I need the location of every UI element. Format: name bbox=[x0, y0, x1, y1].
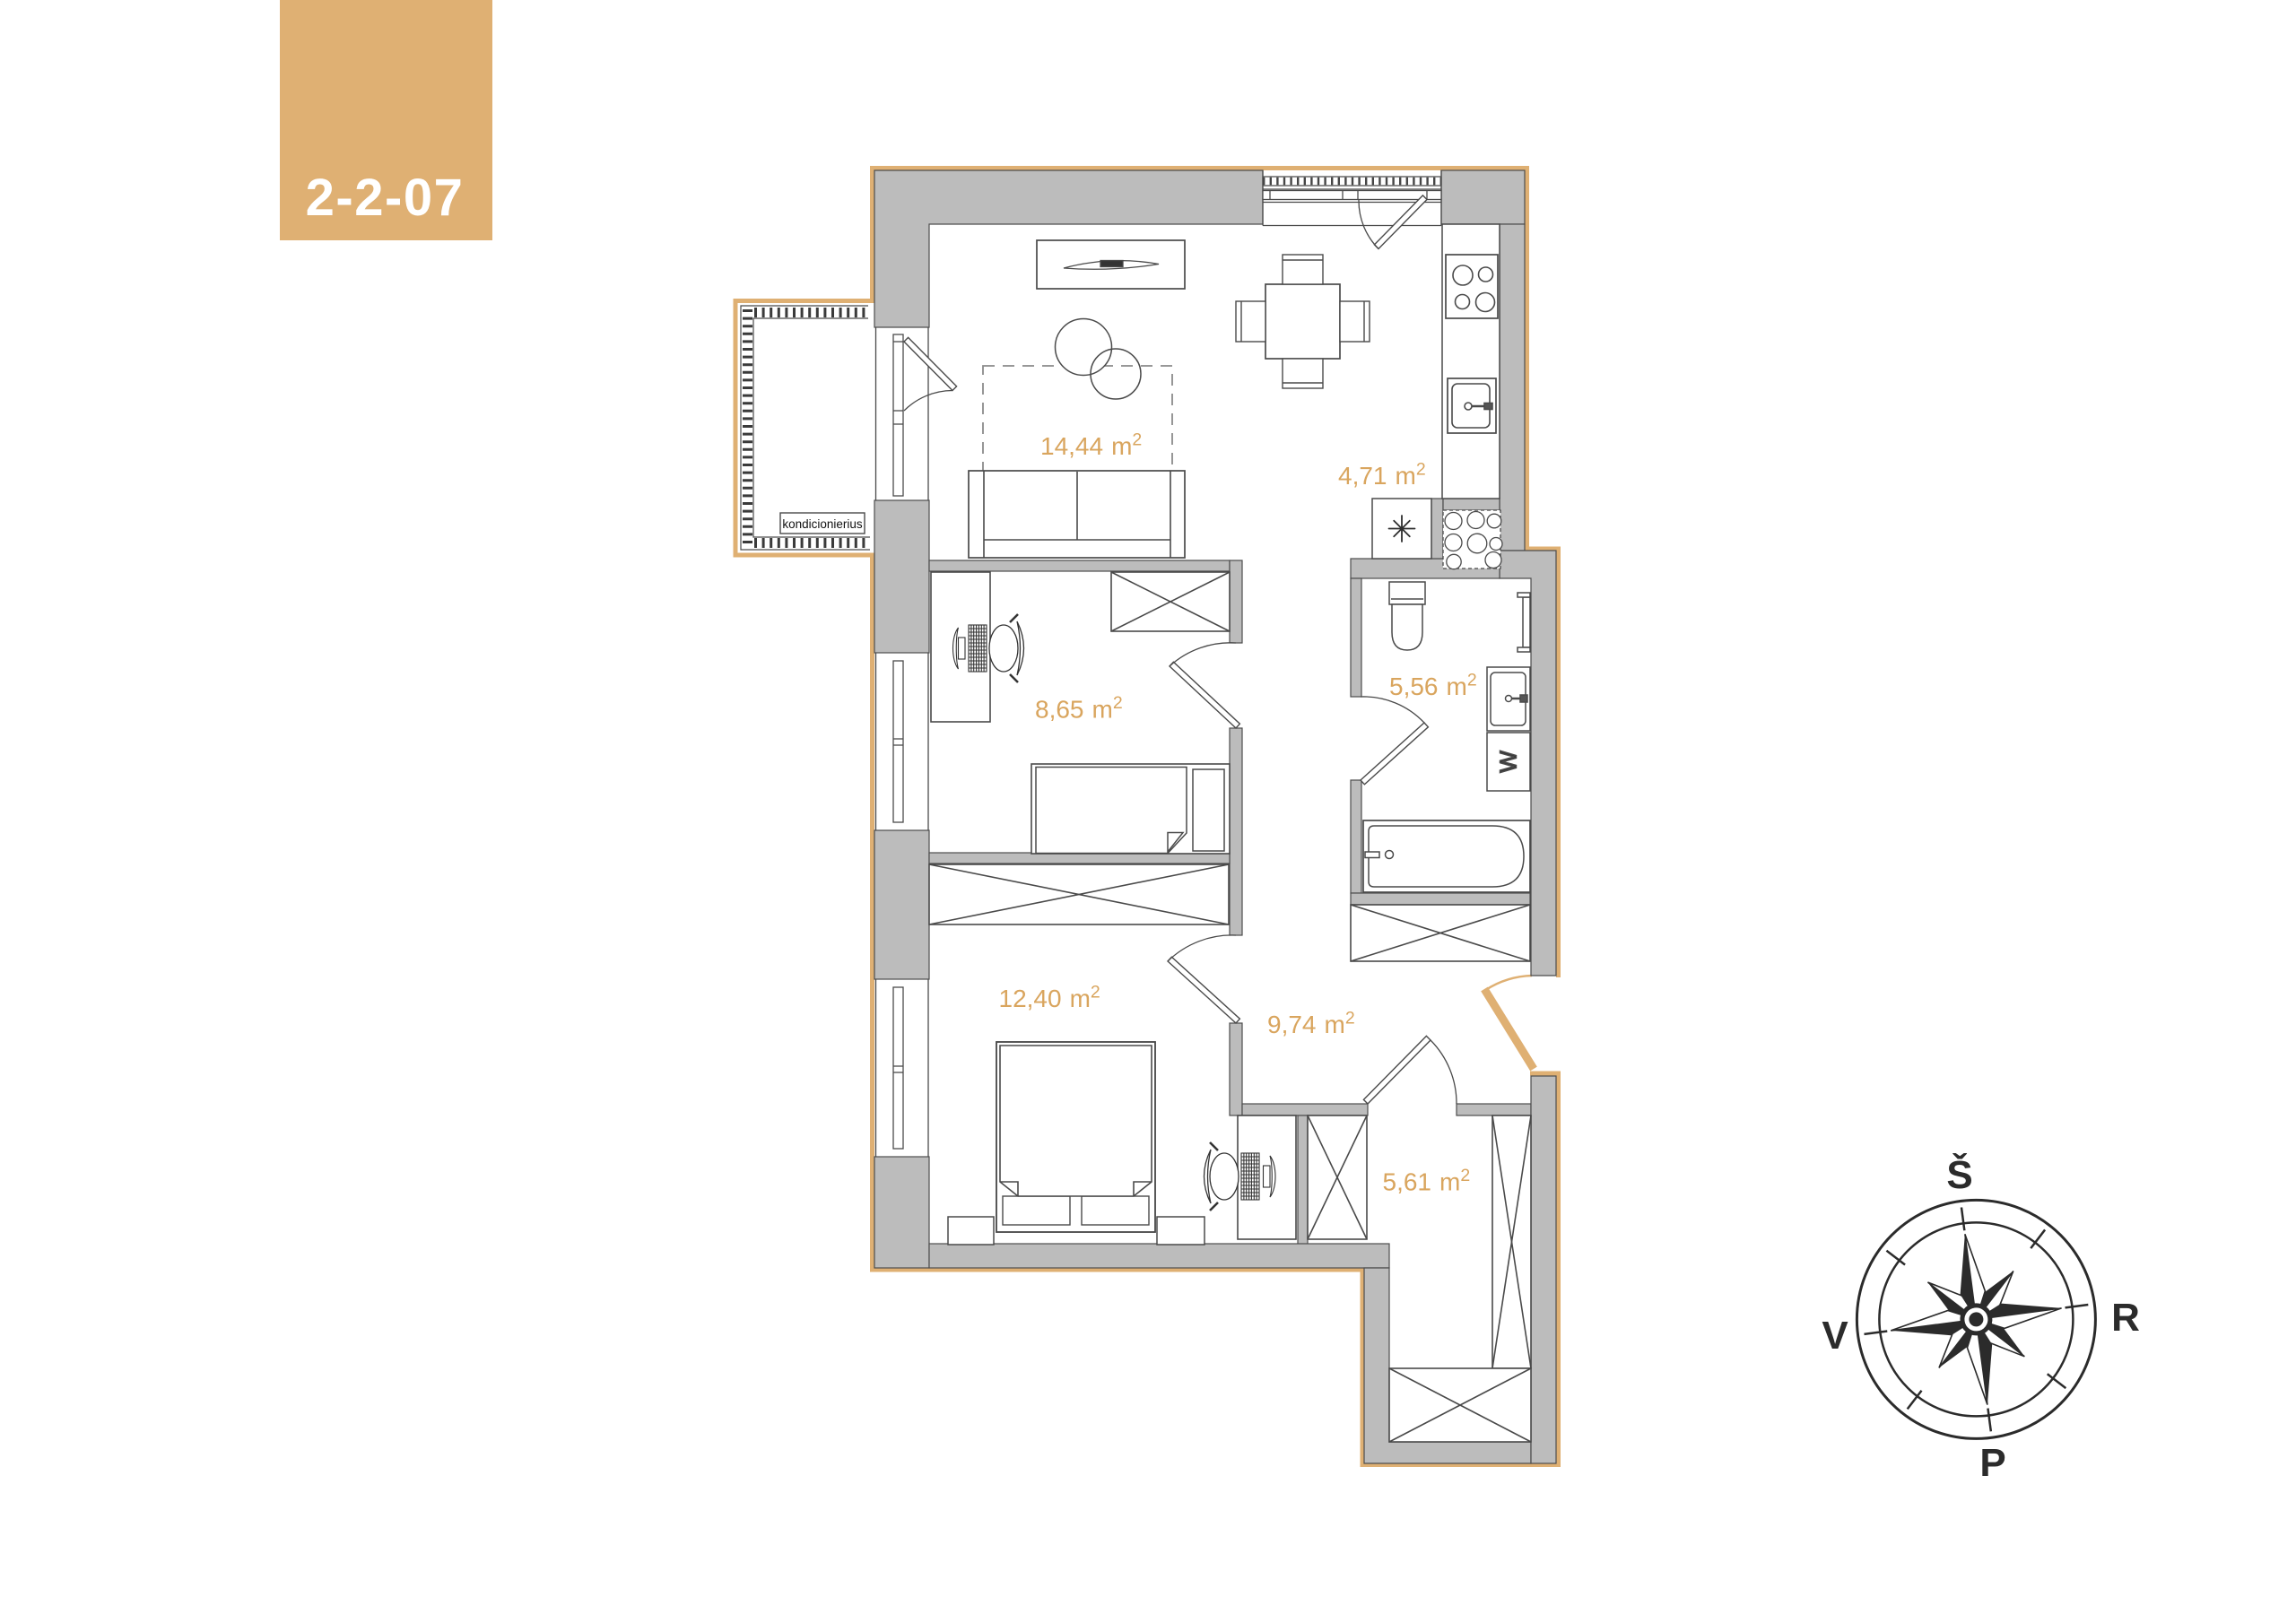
svg-text:kondicionierius: kondicionierius bbox=[782, 517, 863, 531]
svg-text:12,40m2: 12,40m2 bbox=[999, 983, 1100, 1013]
svg-text:8,65m2: 8,65m2 bbox=[1035, 693, 1123, 724]
svg-text:Š: Š bbox=[1946, 1151, 1972, 1197]
svg-text:9,74m2: 9,74m2 bbox=[1267, 1009, 1355, 1039]
svg-text:V: V bbox=[1822, 1314, 1848, 1358]
svg-text:P: P bbox=[1979, 1441, 2005, 1485]
svg-text:W: W bbox=[1495, 751, 1522, 773]
svg-text:5,61m2: 5,61m2 bbox=[1383, 1166, 1471, 1196]
svg-text:R: R bbox=[2111, 1296, 2140, 1340]
svg-text:4,71m2: 4,71m2 bbox=[1338, 460, 1426, 490]
svg-text:2-2-07: 2-2-07 bbox=[306, 169, 465, 227]
svg-text:14,44m2: 14,44m2 bbox=[1040, 430, 1142, 461]
svg-text:5,56m2: 5,56m2 bbox=[1389, 671, 1477, 701]
